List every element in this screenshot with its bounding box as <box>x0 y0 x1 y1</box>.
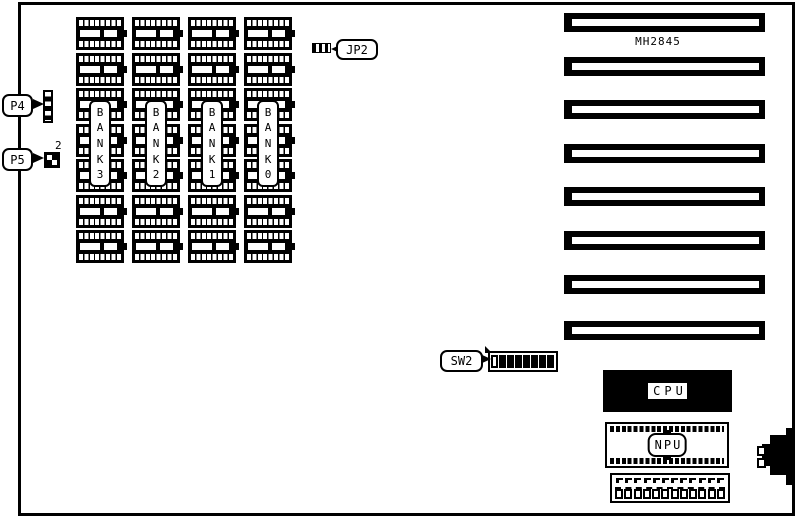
dram-chip <box>76 230 124 263</box>
chip-body-window <box>248 66 268 73</box>
p4-label-text: P4 <box>10 99 24 113</box>
chip-notch <box>180 30 183 37</box>
dram-chip <box>188 195 236 228</box>
chip-notch <box>236 30 239 37</box>
dram-chip <box>132 195 180 228</box>
memory-bank-column-0: BANK0 <box>244 17 292 263</box>
power-pin <box>661 489 669 499</box>
dram-chip <box>76 195 124 228</box>
chip-pin-row <box>247 41 289 47</box>
chip-notch <box>292 101 295 108</box>
chip-notch <box>180 137 183 144</box>
chip-pin-row <box>135 77 177 83</box>
power-tab <box>662 478 669 484</box>
power-pin <box>615 489 623 499</box>
memory-bank-column-1: BANK1 <box>188 17 236 263</box>
chip-pin-row <box>135 20 177 26</box>
chip-pin-row <box>191 56 233 62</box>
dip-switch-sw2 <box>488 351 558 372</box>
slot-opening <box>572 237 759 244</box>
keyboard-connector-pin <box>757 458 766 468</box>
jp2-jumper <box>312 43 331 53</box>
power-connector-pin-row <box>615 489 725 499</box>
bank-label-letter: K <box>97 154 104 165</box>
chip-pin-row <box>79 77 121 83</box>
bank-label-letter: N <box>97 138 104 149</box>
power-tab <box>616 478 623 484</box>
chip-pin-row <box>191 233 233 239</box>
dram-chip <box>132 17 180 50</box>
power-pin <box>680 489 688 499</box>
chip-notch <box>180 66 183 73</box>
chip-notch <box>236 137 239 144</box>
bank-label-letter: A <box>153 122 160 133</box>
chip-body-window <box>160 66 173 73</box>
bank-label-letter: 1 <box>209 169 216 180</box>
p5-pin <box>52 160 57 165</box>
chip-pin-row <box>247 77 289 83</box>
chip-pin-row <box>135 198 177 204</box>
bank-label-letter: 0 <box>265 169 272 180</box>
chip-notch <box>292 30 295 37</box>
chip-notch <box>124 172 127 179</box>
chip-body-window <box>80 208 100 215</box>
chip-body-window <box>104 66 117 73</box>
bank-label-letter: K <box>153 154 160 165</box>
chip-body-window <box>104 243 117 250</box>
dram-chip <box>244 17 292 50</box>
power-pin <box>634 489 642 499</box>
chip-pin-row <box>79 91 121 97</box>
power-tab <box>671 478 678 484</box>
slot-opening <box>572 281 759 288</box>
chip-notch <box>236 66 239 73</box>
dip-switch-position-7 <box>539 355 546 368</box>
chip-pin-row <box>247 20 289 26</box>
power-tab <box>634 478 641 484</box>
power-connector <box>610 473 730 503</box>
bank-label-3: BANK3 <box>89 100 111 187</box>
chip-pin-row <box>191 219 233 225</box>
slot-opening <box>572 106 759 113</box>
chip-pin-row <box>247 91 289 97</box>
chip-notch <box>124 30 127 37</box>
chip-pin-row <box>79 233 121 239</box>
dip-switch-position-3 <box>507 355 514 368</box>
memory-bank-column-2: BANK2 <box>132 17 180 263</box>
chip-body-window <box>80 30 100 37</box>
dram-chip <box>76 17 124 50</box>
p4-pin-header <box>43 90 53 123</box>
power-tab <box>644 478 651 484</box>
chip-body-window <box>80 66 100 73</box>
dram-chip <box>76 53 124 86</box>
slot-opening <box>572 327 759 334</box>
power-tab <box>625 478 632 484</box>
power-tab <box>717 478 724 484</box>
power-tab <box>689 478 696 484</box>
dram-chip <box>188 53 236 86</box>
chip-body-window <box>248 208 268 215</box>
dram-chip <box>132 53 180 86</box>
chip-pin-row <box>79 254 121 260</box>
chip-notch <box>292 172 295 179</box>
power-pin <box>708 489 716 499</box>
keyboard-connector-body <box>770 435 787 475</box>
chip-body-window <box>104 30 117 37</box>
callout-jp2-label: JP2 <box>336 39 378 60</box>
slot-opening <box>572 193 759 200</box>
chip-pin-row <box>247 254 289 260</box>
power-tab <box>653 478 660 484</box>
chip-pin-row <box>79 219 121 225</box>
chip-pin-row <box>135 233 177 239</box>
chip-pin-row <box>247 198 289 204</box>
expansion-slot <box>564 57 765 76</box>
chip-pin-row <box>79 198 121 204</box>
chip-notch <box>236 208 239 215</box>
dram-chip <box>244 195 292 228</box>
callout-p5-label: P5 <box>2 148 33 171</box>
chip-body-window <box>192 30 212 37</box>
chip-pin-row <box>191 198 233 204</box>
bank-label-1: BANK1 <box>201 100 223 187</box>
power-tab <box>708 478 715 484</box>
bank-label-letter: 2 <box>153 169 160 180</box>
chip-notch <box>236 172 239 179</box>
p5-label-text: P5 <box>10 153 24 167</box>
bank-label-letter: K <box>209 154 216 165</box>
chip-notch <box>236 243 239 250</box>
chip-notch <box>180 101 183 108</box>
power-pin <box>698 489 706 499</box>
chip-pin-row <box>135 91 177 97</box>
bank-label-letter: B <box>153 107 160 118</box>
power-connector-tab-row <box>616 478 724 484</box>
chip-notch <box>292 208 295 215</box>
chip-notch <box>180 172 183 179</box>
bank-label-letter: B <box>97 107 104 118</box>
slot-opening <box>572 150 759 157</box>
board-model-label: MH2845 <box>628 35 688 48</box>
sw2-label-text: SW2 <box>451 354 473 368</box>
chip-body-window <box>192 243 212 250</box>
chip-pin-row <box>247 233 289 239</box>
chip-pin-row <box>79 20 121 26</box>
cpu-chip: CPU <box>603 370 732 412</box>
chip-body-window <box>216 30 229 37</box>
chip-body-window <box>160 208 173 215</box>
p5-pin-count: 2 <box>55 139 62 152</box>
dram-chip <box>244 230 292 263</box>
dram-chip <box>188 230 236 263</box>
chip-pin-row <box>79 41 121 47</box>
bank-label-letter: N <box>153 138 160 149</box>
expansion-slot <box>564 275 765 294</box>
chip-pin-row <box>191 77 233 83</box>
jp2-label-text: JP2 <box>346 43 368 57</box>
chip-notch <box>124 137 127 144</box>
chip-pin-row <box>135 56 177 62</box>
chip-notch <box>124 208 127 215</box>
dram-chip <box>244 53 292 86</box>
chip-body-window <box>136 208 156 215</box>
chip-body-window <box>216 66 229 73</box>
dram-chip <box>188 17 236 50</box>
chip-pin-row <box>191 254 233 260</box>
chip-notch <box>292 243 295 250</box>
keyboard-connector-pin <box>757 446 766 456</box>
chip-body-window <box>160 243 173 250</box>
chip-body-window <box>192 66 212 73</box>
chip-notch <box>124 66 127 73</box>
power-tab <box>680 478 687 484</box>
chip-body-window <box>216 208 229 215</box>
chip-notch <box>124 101 127 108</box>
expansion-slot <box>564 144 765 163</box>
chip-body-window <box>136 243 156 250</box>
chip-body-window <box>136 30 156 37</box>
expansion-slot <box>564 321 765 340</box>
expansion-slot <box>564 187 765 206</box>
p5-arrow-icon <box>33 153 44 163</box>
dram-chip <box>132 230 180 263</box>
power-pin <box>652 489 660 499</box>
chip-notch <box>292 66 295 73</box>
chip-body-window <box>136 66 156 73</box>
chip-body-window <box>272 208 285 215</box>
chip-pin-row <box>191 91 233 97</box>
expansion-slot <box>564 100 765 119</box>
chip-notch <box>180 208 183 215</box>
dip-switch-position-4 <box>515 355 522 368</box>
bank-label-letter: 3 <box>97 169 104 180</box>
chip-body-window <box>192 208 212 215</box>
chip-body-window <box>272 30 285 37</box>
expansion-slot <box>564 231 765 250</box>
chip-pin-row <box>247 219 289 225</box>
memory-bank-column-3: BANK3 <box>76 17 124 263</box>
cpu-label: CPU <box>648 383 687 399</box>
chip-pin-row <box>247 56 289 62</box>
power-pin <box>671 489 679 499</box>
callout-p4-label: P4 <box>2 94 33 117</box>
bank-label-letter: A <box>97 122 104 133</box>
bank-label-letter: A <box>209 122 216 133</box>
chip-body-window <box>216 243 229 250</box>
chip-pin-row <box>191 41 233 47</box>
p5-pin-header <box>44 152 60 168</box>
dip-switch-position-8 <box>547 355 554 368</box>
chip-body-window <box>80 243 100 250</box>
chip-pin-row <box>135 254 177 260</box>
bank-label-letter: N <box>265 138 272 149</box>
npu-socket: NPU <box>605 422 729 468</box>
power-pin <box>643 489 651 499</box>
chip-pin-row <box>135 219 177 225</box>
motherboard-diagram: P4 P5 2 JP2 BANK3 BANK2 BANK1 BANK0 MH28… <box>0 0 800 520</box>
chip-body-window <box>248 243 268 250</box>
dip-switch-position-2 <box>499 355 506 368</box>
bank-label-0: BANK0 <box>257 100 279 187</box>
chip-notch <box>292 137 295 144</box>
p4-arrow-icon <box>33 99 44 109</box>
power-pin <box>624 489 632 499</box>
bank-label-letter: B <box>209 107 216 118</box>
bank-label-letter: A <box>265 122 272 133</box>
slot-opening <box>572 19 759 26</box>
chip-pin-row <box>135 41 177 47</box>
chip-pin-row <box>191 20 233 26</box>
npu-label: NPU <box>648 433 687 457</box>
dip-switch-position-5 <box>523 355 530 368</box>
chip-notch <box>236 101 239 108</box>
chip-body-window <box>104 208 117 215</box>
power-pin <box>717 489 725 499</box>
bank-label-letter: N <box>209 138 216 149</box>
bank-label-letter: B <box>265 107 272 118</box>
bank-label-letter: K <box>265 154 272 165</box>
callout-sw2-label: SW2 <box>440 350 483 372</box>
chip-notch <box>124 243 127 250</box>
power-pin <box>689 489 697 499</box>
chip-body-window <box>248 30 268 37</box>
bank-label-2: BANK2 <box>145 100 167 187</box>
chip-pin-row <box>79 56 121 62</box>
dip-switch-position-1 <box>491 355 498 368</box>
chip-body-window <box>160 30 173 37</box>
chip-body-window <box>272 66 285 73</box>
dip-switch-position-6 <box>531 355 538 368</box>
expansion-slot <box>564 13 765 32</box>
chip-body-window <box>272 243 285 250</box>
keyboard-connector <box>786 428 795 485</box>
slot-opening <box>572 63 759 70</box>
chip-notch <box>180 243 183 250</box>
power-tab <box>699 478 706 484</box>
